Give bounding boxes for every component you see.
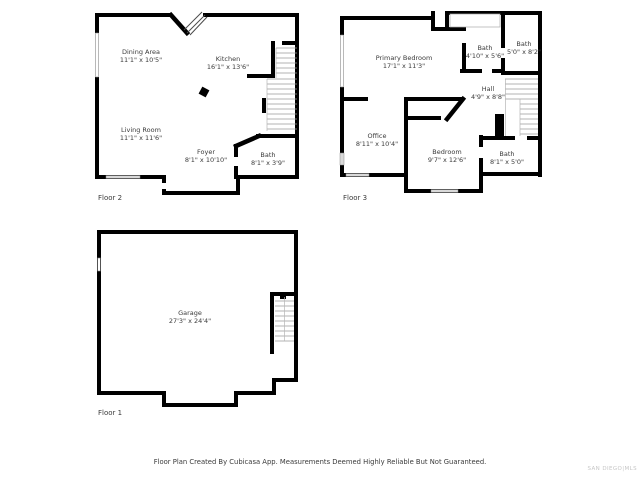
room-label-office: Office 8'11" x 10'4"	[356, 133, 398, 149]
room-dims: 4'10" x 5'6"	[466, 53, 504, 61]
room-label-bath-upper-right: Bath 5'0" x 8'2"	[507, 41, 541, 57]
room-label-bedroom: Bedroom 9'7" x 12'6"	[428, 149, 466, 165]
kitchen-island	[199, 87, 210, 98]
room-label-bath-small: Bath 4'10" x 5'6"	[466, 45, 504, 61]
floorplan-drawing	[0, 0, 640, 480]
floor-1-label: Floor 1	[98, 409, 122, 417]
room-label-garage: Garage 27'3" x 24'4"	[169, 310, 211, 326]
floor-3-label: Floor 3	[343, 194, 367, 202]
room-label-bath-floor2: Bath 8'1" x 3'9"	[251, 152, 285, 168]
room-label-kitchen: Kitchen 16'1" x 13'6"	[207, 56, 249, 72]
floor-1-stairs	[270, 292, 298, 354]
floor-2-label: Floor 2	[98, 194, 122, 202]
room-label-foyer: Foyer 8'1" x 10'10"	[185, 149, 227, 165]
room-dims: 8'11" x 10'4"	[356, 141, 398, 149]
disclaimer-text: Floor Plan Created By Cubicasa App. Meas…	[0, 458, 640, 466]
room-dims: 17'1" x 11'3"	[376, 63, 433, 71]
floor-3-stairs	[505, 79, 538, 136]
room-dims: 5'0" x 8'2"	[507, 49, 541, 57]
room-label-living-room: Living Room 11'1" x 11'6"	[120, 127, 162, 143]
floorplan-page: Dining Area 11'1" x 10'5" Kitchen 16'1" …	[0, 0, 640, 480]
room-dims: 4'9" x 8'8"	[471, 94, 505, 102]
floor-1-window	[98, 258, 101, 271]
bathtub	[450, 14, 500, 27]
room-dims: 11'1" x 11'6"	[120, 135, 162, 143]
room-dims: 16'1" x 13'6"	[207, 64, 249, 72]
mls-watermark: SAN DIEGO|MLS	[588, 466, 638, 472]
room-dims: 27'3" x 24'4"	[169, 318, 211, 326]
room-label-hall: Hall 4'9" x 8'8"	[471, 86, 505, 102]
room-dims: 8'1" x 5'0"	[490, 159, 524, 167]
room-dims: 8'1" x 10'10"	[185, 157, 227, 165]
room-label-bath-lower-right: Bath 8'1" x 5'0"	[490, 151, 524, 167]
room-dims: 9'7" x 12'6"	[428, 157, 466, 165]
room-label-primary-bedroom: Primary Bedroom 17'1" x 11'3"	[376, 55, 433, 71]
room-label-dining-area: Dining Area 11'1" x 10'5"	[120, 49, 162, 65]
room-dims: 11'1" x 10'5"	[120, 57, 162, 65]
room-dims: 8'1" x 3'9"	[251, 160, 285, 168]
